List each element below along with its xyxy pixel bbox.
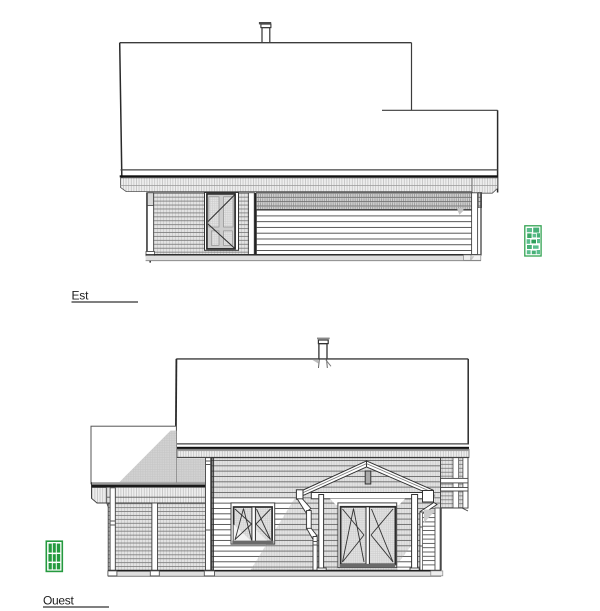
svg-text:Est: Est xyxy=(72,289,90,303)
svg-text:Ouest: Ouest xyxy=(43,594,74,608)
